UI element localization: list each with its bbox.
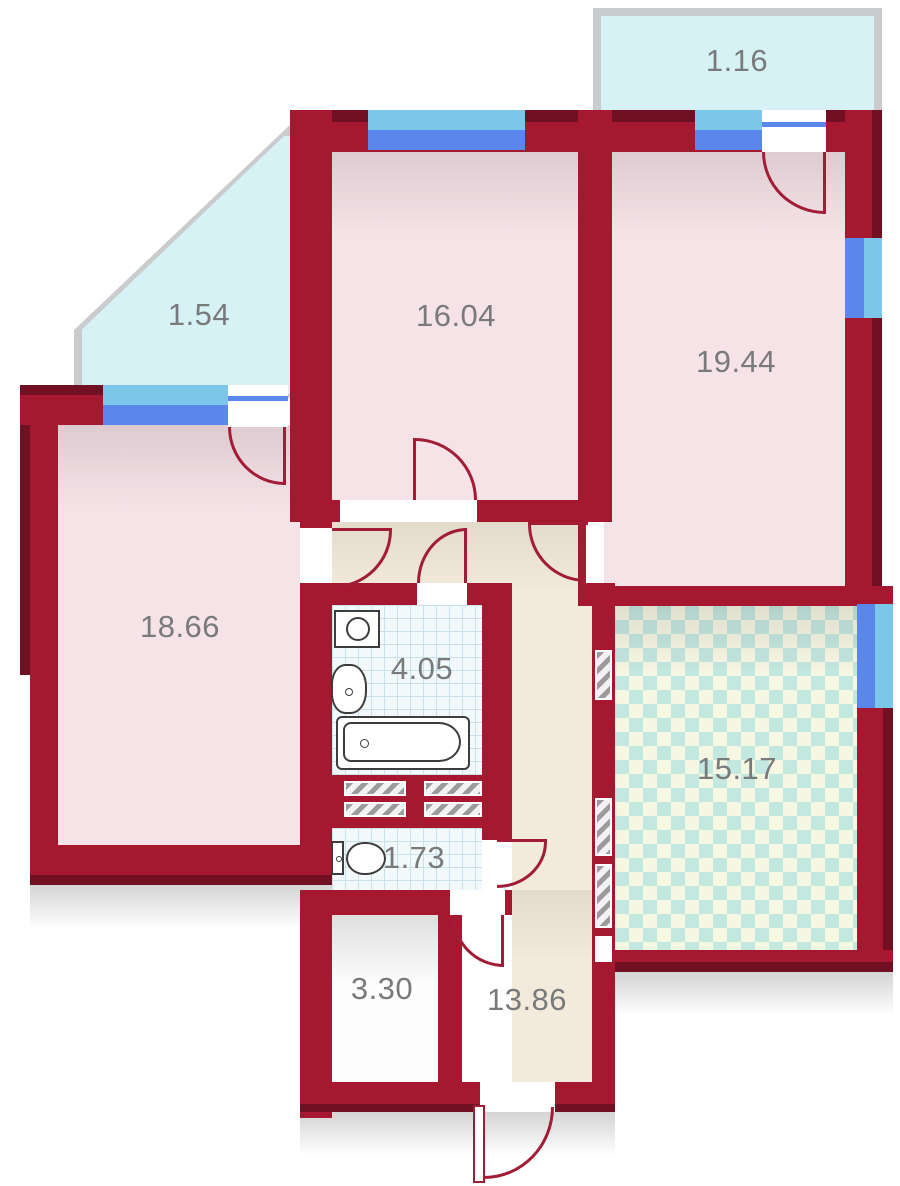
toilet-bowl	[346, 842, 386, 875]
storage-door-gap	[450, 890, 505, 915]
washing-machine-drum	[346, 617, 370, 641]
window-bedroom-right-top-inner	[695, 130, 762, 150]
shadow-below-left-room	[30, 885, 332, 929]
wall-kitchen-bottom-outer-edge	[615, 962, 893, 972]
door-leaf-wc	[497, 839, 547, 842]
wall-hall-east-bottom-edge	[592, 1104, 615, 1112]
bedroom-right-door-gap	[586, 522, 604, 583]
vent-shaft-bath-1	[344, 781, 406, 796]
vent-shaft-bath-3	[344, 802, 406, 817]
wall-right-outer-edge	[872, 110, 882, 590]
window-bedroom-right-top-outer	[695, 110, 762, 130]
entry-door-arc	[484, 1107, 554, 1179]
entry-door-leaf	[473, 1105, 485, 1183]
window-bedroom-right-side-outer	[864, 238, 882, 318]
balcony-door-gap-living-left	[228, 385, 288, 427]
window-bedroom-top-outer	[368, 110, 525, 130]
wall-entry-bottom-edge-a	[300, 1104, 480, 1112]
toilet-cistern	[331, 841, 344, 875]
room-label-living-left: 18.66	[140, 609, 220, 645]
bathroom-door-gap	[417, 583, 467, 605]
door-leaf-bathroom	[464, 528, 467, 583]
floor-plan: 1.16 1.54 16.04 19.44 18.66 4.05 15.17 1…	[0, 0, 900, 1186]
vent-shaft-kitchen-upper	[595, 650, 612, 700]
balcony-door-leaf-bedroom-right	[823, 152, 826, 214]
wall-kitchen-top	[578, 586, 893, 606]
door-leaf-living-left	[332, 528, 392, 531]
balcony-door-threshold-living-left	[228, 396, 288, 401]
room-label-bathroom: 4.05	[391, 651, 453, 687]
shadow-below-entry	[300, 1112, 615, 1156]
vent-shaft-bath-4	[424, 802, 482, 817]
room-label-bedroom-right: 19.44	[696, 344, 776, 380]
wall-kitchen-right-outer-edge	[883, 708, 893, 972]
bathtub	[336, 716, 470, 770]
room-label-kitchen: 15.17	[697, 751, 777, 787]
living-left-door-gap	[300, 528, 332, 590]
wall-left-of-bedroom-top	[290, 110, 332, 522]
window-living-left-outer	[103, 385, 228, 405]
washing-machine	[334, 610, 380, 648]
room-label-balcony-left: 1.54	[168, 297, 230, 333]
balcony-door-leaf-living-left	[283, 427, 286, 485]
shadow-below-kitchen	[615, 972, 893, 1016]
door-leaf-bedroom-top	[413, 438, 416, 500]
sink	[331, 664, 367, 714]
door-leaf-bedroom-right	[528, 522, 588, 525]
toilet-button	[336, 856, 342, 862]
window-kitchen-inner	[857, 604, 875, 708]
room-label-balcony-top: 1.16	[706, 43, 768, 79]
window-bedroom-right-side-inner	[845, 238, 864, 318]
room-label-storage: 3.30	[351, 971, 413, 1007]
wall-wc-bottom-a	[300, 890, 450, 915]
wall-hall-top-b	[477, 500, 578, 522]
bedroom-top-door-gap	[340, 500, 477, 522]
window-kitchen-outer	[875, 604, 893, 708]
wall-bathroom-top-a	[300, 583, 417, 605]
vent-shaft-bath-2	[424, 781, 482, 796]
wall-wc-bottom-b	[505, 890, 512, 915]
wall-bathroom-top-b	[467, 583, 512, 605]
wall-living-right-upper	[300, 500, 332, 528]
bathtub-drain	[360, 739, 369, 748]
room-label-hallway: 13.86	[487, 982, 567, 1018]
room-label-wc: 1.73	[383, 840, 445, 876]
kitchen-floor-shading	[615, 606, 857, 676]
vent-shaft-kitchen-mid	[595, 798, 612, 856]
wall-living-top-left-edge	[20, 385, 103, 395]
wall-niche	[595, 936, 612, 962]
sink-drain	[345, 688, 353, 696]
balcony-door-threshold-bedroom-right	[762, 122, 826, 127]
window-living-left-inner	[103, 405, 228, 425]
balcony-left	[82, 136, 304, 394]
door-leaf-storage	[501, 915, 504, 967]
wall-between-bedrooms	[578, 110, 612, 522]
room-label-bedroom-top: 16.04	[416, 298, 496, 334]
wall-living-bottom-edge	[30, 875, 332, 885]
window-bedroom-top-inner	[368, 130, 525, 150]
balcony-door-gap-bedroom-right	[762, 110, 826, 152]
vent-shaft-kitchen-lower	[595, 864, 612, 928]
wall-left-outer-edge	[20, 385, 30, 675]
